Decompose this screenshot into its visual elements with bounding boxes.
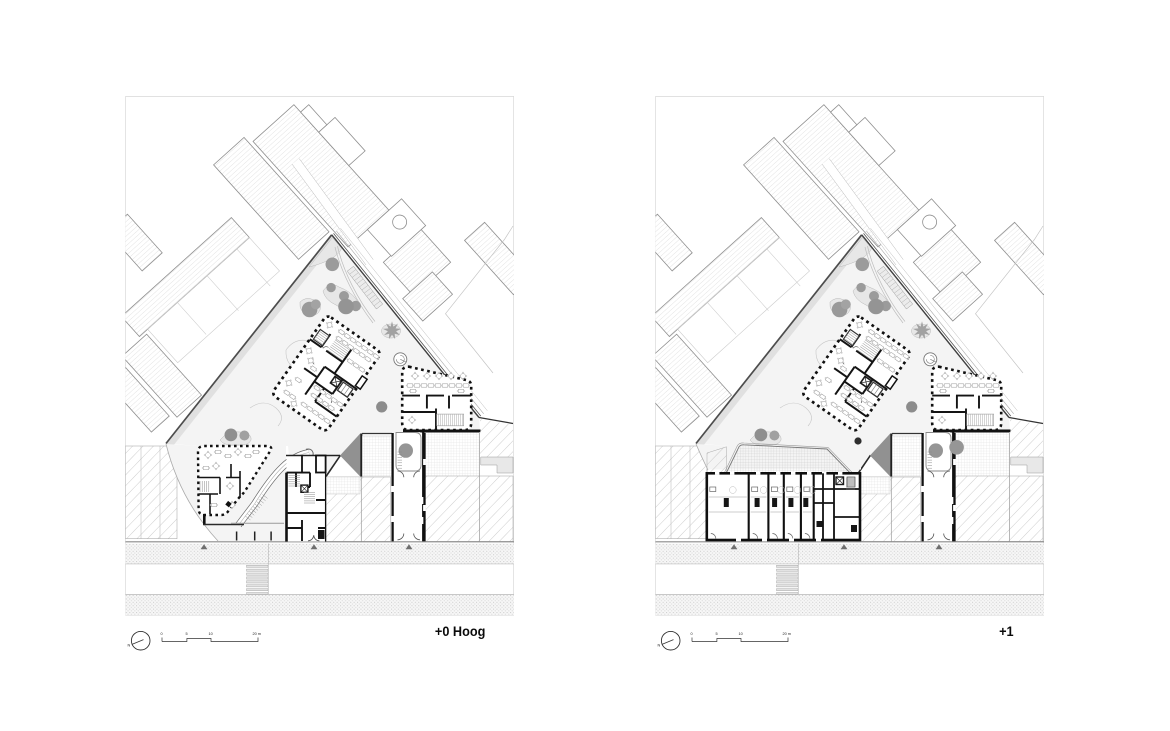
svg-text:N: N [128, 644, 131, 648]
svg-text:+1: +1 [999, 623, 1014, 639]
svg-text:0: 0 [161, 632, 163, 636]
svg-text:20 m: 20 m [253, 632, 261, 636]
svg-text:10: 10 [739, 632, 743, 636]
svg-text:N: N [658, 644, 661, 648]
svg-text:5: 5 [716, 632, 718, 636]
svg-text:20 m: 20 m [783, 632, 791, 636]
svg-text:0: 0 [691, 632, 693, 636]
svg-text:+0 Hoog: +0 Hoog [435, 623, 486, 639]
svg-text:5: 5 [186, 632, 188, 636]
svg-text:10: 10 [209, 632, 213, 636]
